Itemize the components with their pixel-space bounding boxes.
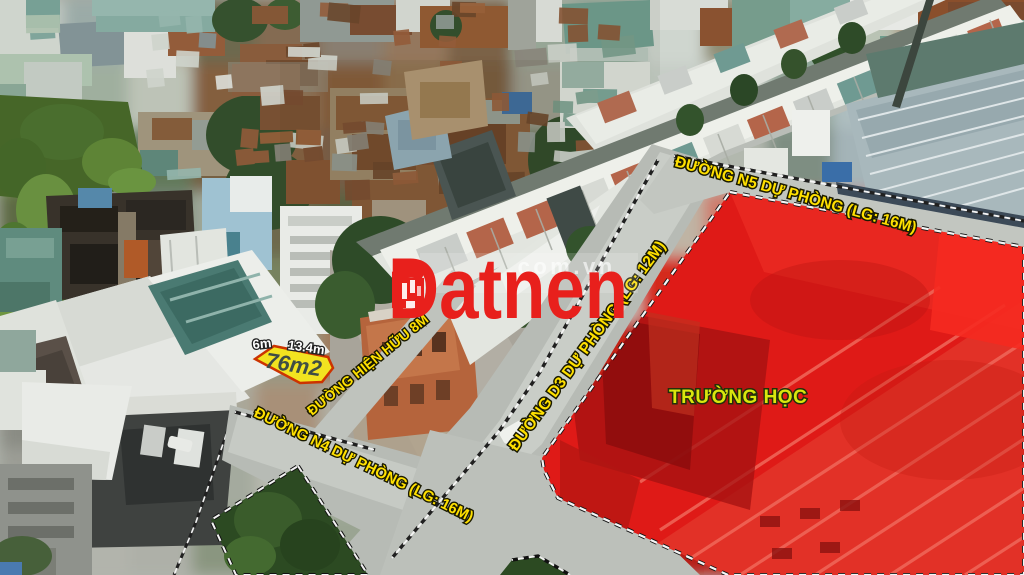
svg-text:TRƯỜNG HỌC: TRƯỜNG HỌC xyxy=(669,386,807,408)
svg-text:6m: 6m xyxy=(252,335,272,352)
